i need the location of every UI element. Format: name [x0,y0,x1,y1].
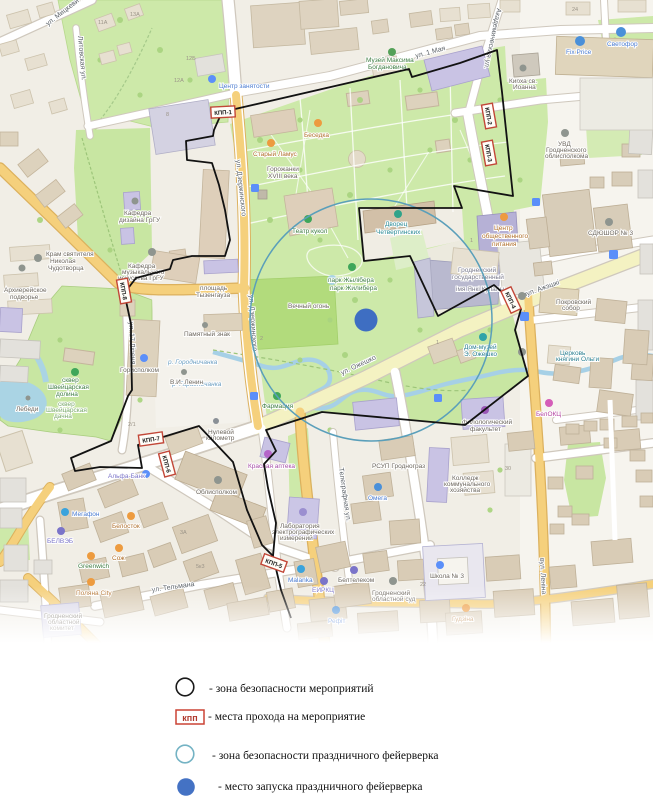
svg-text:Светофор: Светофор [607,41,638,48]
svg-text:Кафедра: Кафедра [124,210,152,217]
svg-text:24: 24 [572,7,578,13]
svg-text:Центр: Центр [494,225,513,232]
svg-text:13А: 13А [130,12,140,18]
svg-text:В.И. Ленин: В.И. Ленин [170,379,204,386]
svg-text:Лебеди: Лебеди [16,405,39,413]
svg-text:11А: 11А [98,20,108,26]
svg-text:Архиерейское: Архиерейское [4,286,47,294]
svg-text:Мегафон: Мегафон [72,511,100,518]
svg-text:Гродненский: Гродненский [458,266,497,274]
svg-text:- место запуска праздничного ф: - место запуска праздничного фейерверка [218,781,422,793]
svg-text:Дом-музей: Дом-музей [464,343,497,351]
svg-text:- зона безопасности мероприяти: - зона безопасности мероприятий [209,683,374,695]
svg-text:Омега: Омега [368,495,387,502]
svg-text:Горожанки: Горожанки [267,166,299,173]
svg-text:парк Жилибера: парк Жилибера [330,284,377,292]
svg-text:Сож: Сож [112,555,125,562]
svg-text:Белтелеком: Белтелеком [338,577,375,584]
svg-text:2: 2 [260,336,263,342]
svg-text:парк Жылібера: парк Жылібера [328,276,374,284]
svg-text:долина: долина [56,391,78,398]
svg-text:СДЮШОР № 3: СДЮШОР № 3 [588,230,633,237]
svg-text:Дворец: Дворец [385,221,408,228]
svg-text:Музей Максима: Музей Максима [366,56,414,64]
svg-text:Greenwich: Greenwich [78,563,109,570]
svg-text:факультет: факультет [470,426,501,433]
svg-text:Э. Ожешко: Э. Ожешко [464,351,497,358]
svg-text:Вечный огонь: Вечный огонь [288,302,330,310]
svg-text:3А: 3А [180,530,187,536]
svg-text:РСУП Гроднограз: РСУП Гроднограз [372,463,425,470]
svg-text:Швейцарская: Швейцарская [48,383,89,391]
svg-text:2/1: 2/1 [128,422,136,428]
svg-text:- зона безопасности празднично: - зона безопасности праздничного фейерве… [212,750,439,762]
svg-text:12Б: 12Б [186,56,196,62]
svg-text:Чудотворца: Чудотворца [48,265,84,272]
svg-text:питания: питания [492,241,517,248]
svg-text:общественного: общественного [482,232,528,240]
svg-text:12А: 12А [174,78,184,84]
svg-text:дизайна ГрГУ: дизайна ГрГУ [119,216,161,224]
svg-text:Беседка: Беседка [304,132,329,139]
svg-text:Fix Price: Fix Price [566,49,592,56]
svg-text:кпп: кпп [182,713,197,723]
svg-text:Malanka: Malanka [288,577,313,584]
svg-text:Центр занятости: Центр занятости [219,83,270,90]
svg-text:Старый Ламус: Старый Ламус [253,150,298,158]
svg-text:дачна: дачна [54,413,72,420]
svg-text:Облисполком: Облисполком [196,488,237,496]
svg-text:Николая: Николая [50,258,76,265]
svg-text:Крам святителя: Крам святителя [46,251,94,258]
svg-text:р. Городничанка: р. Городничанка [167,358,218,366]
svg-text:8: 8 [166,112,169,118]
svg-text:Четвертинских: Четвертинских [376,229,421,236]
svg-text:Красная аптека: Красная аптека [248,463,295,470]
svg-text:- места прохода на мероприятие: - места прохода на мероприятие [208,711,365,723]
svg-text:5к3: 5к3 [196,564,205,570]
svg-text:Памятный знак: Памятный знак [184,330,230,338]
svg-text:30: 30 [505,466,511,472]
svg-text:Иоанна: Иоанна [513,84,536,91]
svg-text:облисполкома: облисполкома [545,152,589,160]
svg-text:Школа № 3: Школа № 3 [430,573,464,580]
svg-text:1: 1 [436,340,439,346]
svg-text:подворье: подворье [10,294,39,301]
svg-text:хозяйства: хозяйства [450,486,480,494]
svg-text:княгини Ольги: княгини Ольги [556,356,600,363]
svg-text:XVIII века: XVIII века [268,173,298,180]
svg-text:государственный: государственный [452,273,504,281]
svg-text:собор: собор [562,304,580,312]
svg-text:1: 1 [470,238,473,244]
svg-text:БЕЛВЭБ: БЕЛВЭБ [47,538,73,545]
svg-text:Театр кукол: Театр кукол [292,228,328,235]
svg-text:Тызенгауза: Тызенгауза [196,292,230,299]
svg-text:сквер: сквер [62,377,79,384]
svg-text:измерений: измерений [280,534,313,542]
svg-text:Альфа-Банк: Альфа-Банк [108,473,145,480]
svg-text:БелОКЦ: БелОКЦ [536,411,561,418]
svg-text:площадь: площадь [200,285,228,292]
svg-text:Белосток: Белосток [112,523,140,530]
svg-text:КПП-1: КПП-1 [214,110,233,117]
svg-text:Горисполком: Горисполком [120,367,160,374]
